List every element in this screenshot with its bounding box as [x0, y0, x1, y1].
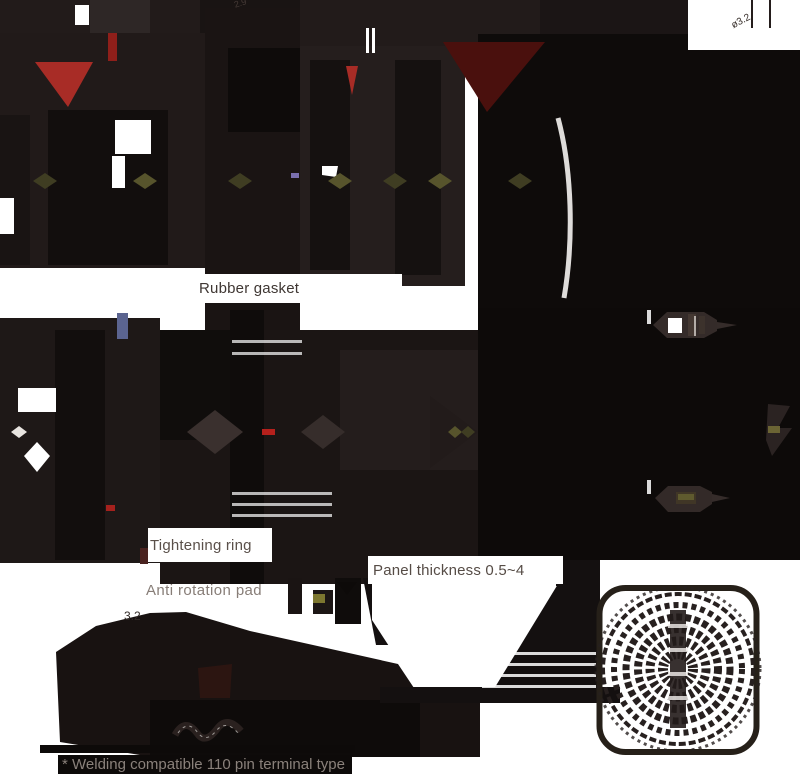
drawing-shape	[40, 745, 355, 753]
steel-blue-marker	[117, 313, 128, 339]
white-slit	[647, 310, 651, 324]
white-slit	[668, 648, 688, 652]
technical-drawing-canvas	[0, 0, 800, 779]
drawing-shape	[340, 350, 480, 470]
red-marker	[106, 505, 115, 511]
right-assembly-view	[478, 308, 800, 560]
white-slit	[366, 28, 369, 53]
white-slit	[488, 674, 596, 677]
white-slit	[232, 492, 332, 495]
white-pocket	[112, 156, 125, 188]
drawing-shape	[288, 578, 302, 614]
drawing-shape	[0, 115, 30, 265]
drawing-shape	[395, 60, 441, 275]
panel-thickness-callout: Panel thickness 0.5~4	[368, 556, 563, 584]
white-slit	[232, 514, 332, 517]
white-square-marker	[668, 318, 682, 333]
section-views	[0, 308, 800, 586]
drawing-shape	[380, 687, 620, 703]
white-pocket	[0, 198, 14, 234]
rubber-gasket-callout: Rubber gasket	[185, 274, 402, 303]
red-marker	[262, 429, 275, 435]
white-pocket	[115, 120, 151, 154]
violet-marker	[291, 173, 299, 178]
drawing-shape	[699, 316, 705, 334]
tightening-ring-callout: Tightening ring	[148, 528, 272, 562]
anti-rotation-pad-callout: Anti rotation pad	[146, 580, 262, 600]
white-slit	[668, 696, 688, 700]
drawing-shape	[310, 60, 350, 270]
dimension-3-2: 3.2	[124, 609, 141, 623]
white-slit	[668, 672, 688, 676]
white-pocket	[18, 388, 56, 412]
maroon-marker	[140, 548, 148, 564]
drawing-shape	[55, 330, 105, 560]
white-slit	[694, 316, 696, 336]
white-slit	[668, 624, 688, 628]
white-slit	[232, 503, 332, 506]
white-slit	[372, 28, 375, 53]
right-side-view	[478, 34, 800, 308]
footnote: * Welding compatible 110 pin terminal ty…	[62, 756, 345, 774]
white-pocket	[75, 5, 89, 25]
dimension-line	[751, 0, 753, 28]
olive-marker	[313, 594, 325, 603]
technical-drawing-page: Rubber gasket Tightening ring Anti rotat…	[0, 0, 800, 779]
dimension-line	[769, 0, 771, 28]
bottom-views	[40, 578, 620, 774]
white-slit	[482, 685, 596, 688]
red-marker	[108, 33, 117, 61]
olive-marker	[768, 426, 780, 433]
white-slit	[494, 663, 596, 666]
pin-face-view	[596, 587, 760, 752]
maroon-marker	[198, 664, 232, 698]
white-slit	[647, 480, 651, 494]
olive-marker	[678, 494, 694, 500]
white-slit	[232, 352, 302, 355]
white-slit	[500, 652, 596, 655]
white-slit	[232, 340, 302, 343]
